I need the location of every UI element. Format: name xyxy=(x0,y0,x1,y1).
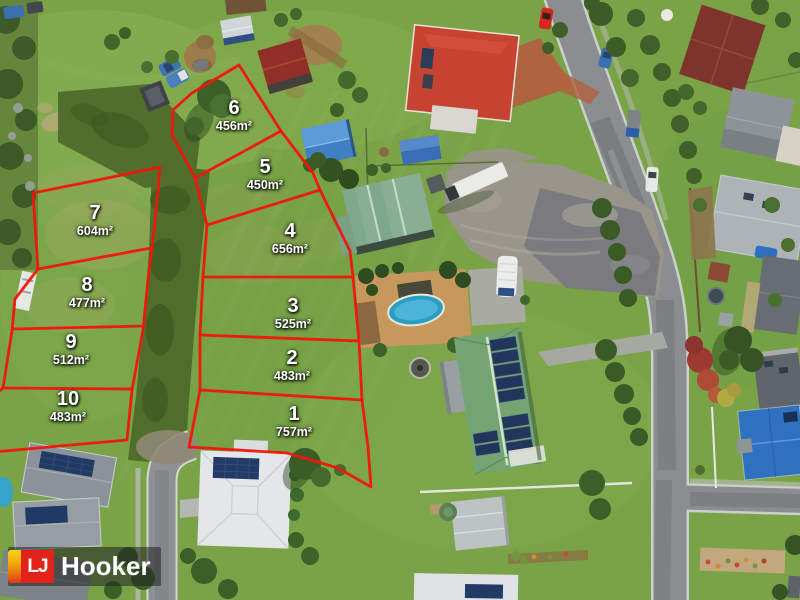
pool-area xyxy=(355,261,472,357)
round-pool xyxy=(708,288,724,304)
red-shed xyxy=(708,261,731,282)
white-roof-shed xyxy=(220,15,255,45)
caravan xyxy=(496,256,518,298)
ljhooker-gradient-stripe-icon xyxy=(8,550,21,583)
solar-house-2 xyxy=(13,498,101,550)
solar-panels xyxy=(213,457,260,480)
aerial-subdivision-photo: 1 757m² 2 483m² 3 525m² 4 656m² 5 450m² … xyxy=(0,0,800,600)
parked-car-dark xyxy=(26,1,43,14)
backyard-dirt xyxy=(688,186,716,260)
ljhooker-logo-square: LJ xyxy=(21,550,54,583)
ljhooker-brand-text: Hooker xyxy=(61,550,151,583)
picnic-table xyxy=(379,147,389,157)
garden-fountain xyxy=(410,358,430,378)
aerial-scene xyxy=(0,0,800,600)
white-roof-house xyxy=(197,438,292,548)
white-ute xyxy=(645,167,659,193)
deck xyxy=(430,105,478,134)
ljhooker-monogram: LJ xyxy=(27,556,47,578)
divider-9-10 xyxy=(3,388,132,389)
ljhooker-watermark: LJ Hooker xyxy=(8,547,161,586)
bottom-house xyxy=(414,573,519,600)
retaining-wall xyxy=(700,548,786,574)
umbrella xyxy=(661,9,673,21)
concrete-apron xyxy=(468,266,526,326)
